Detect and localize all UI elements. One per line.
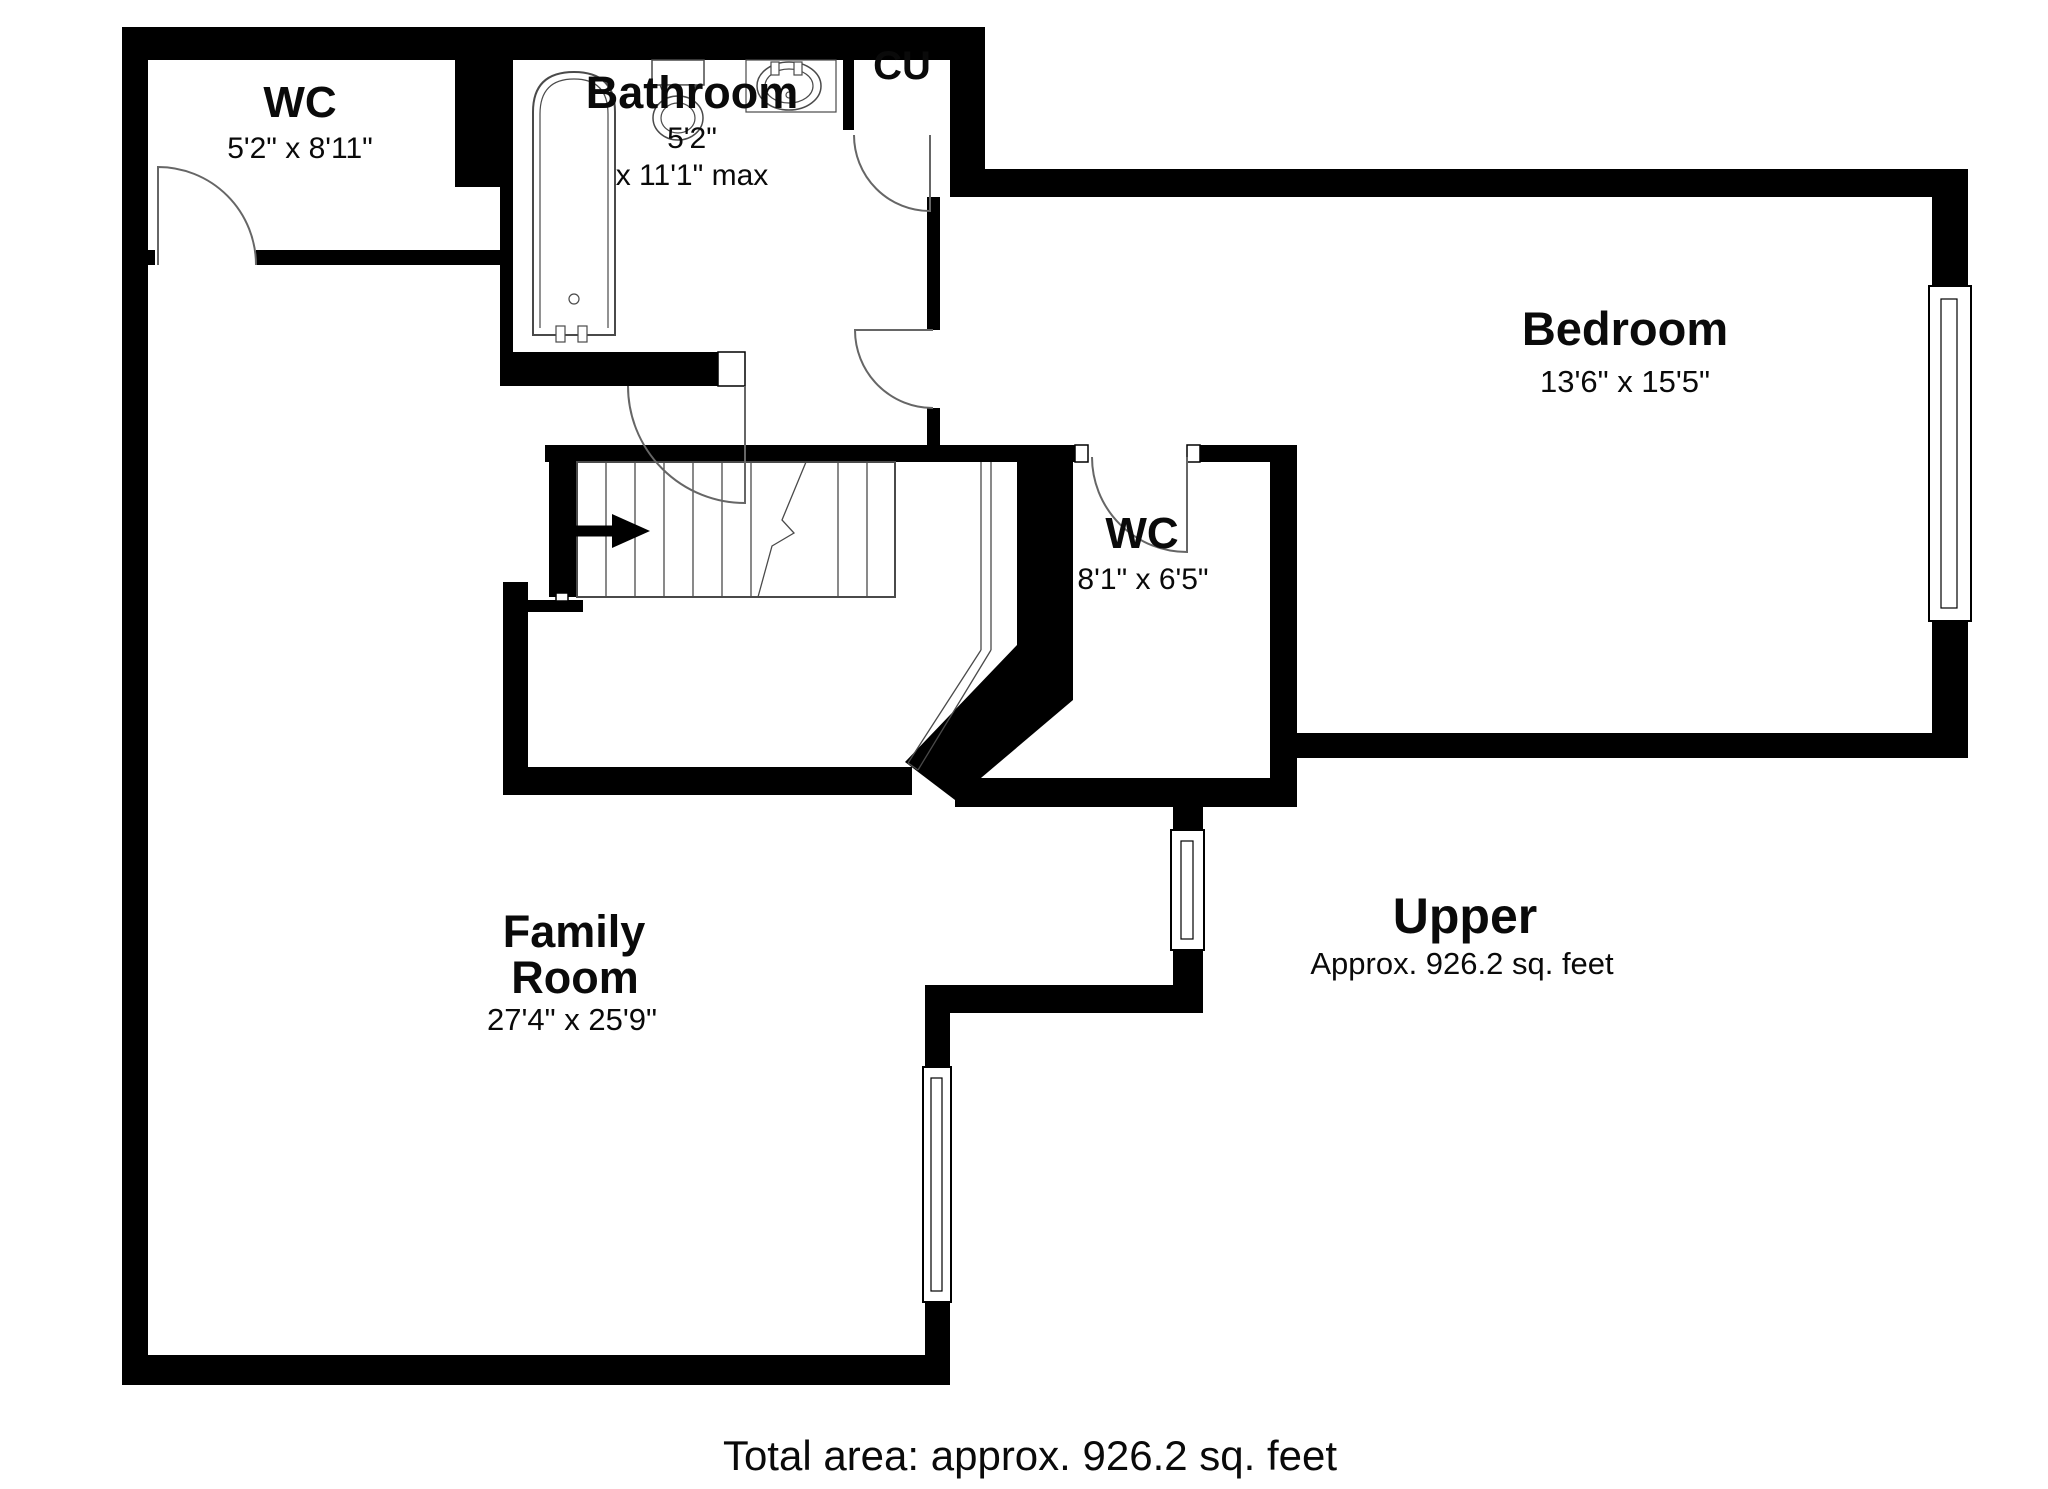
room-dims-wc-mid: 8'1" x 6'5"	[1077, 563, 1208, 596]
room-label-wc-top: WC	[263, 78, 336, 127]
wall-bedroom-top	[950, 169, 1968, 197]
wall-hall-band-east	[1200, 445, 1270, 462]
jamb-bathroom-door	[718, 352, 745, 386]
wall-family-bottom	[122, 1355, 950, 1385]
wall-wctop-bottom	[256, 250, 500, 265]
wall-wcmid-right	[1270, 445, 1297, 807]
wall-family-right-upper	[925, 1013, 950, 1067]
floor-area: Approx. 926.2 sq. feet	[1310, 946, 1614, 981]
landing-window	[1171, 830, 1204, 950]
wall-bedroom-bottom	[1270, 733, 1968, 758]
wall-right-upper	[1932, 197, 1968, 287]
total-area-footer: Total area: approx. 926.2 sq. feet	[723, 1432, 1337, 1479]
wall-cu-left	[843, 27, 854, 130]
room-label-bedroom: Bedroom	[1522, 302, 1728, 355]
wall-wctop-bottom-stub	[122, 250, 155, 265]
room-dims-bedroom: 13'6" x 15'5"	[1540, 364, 1710, 399]
room-label-family-1: Family	[503, 906, 646, 957]
wall-understairs-vertical	[503, 582, 528, 795]
wall-wcmid-bottom	[955, 778, 1297, 807]
family-room-window	[923, 1067, 951, 1302]
wall-understairs-horizontal	[503, 767, 912, 795]
wall-left-outer	[122, 27, 148, 1385]
room-dims-family: 27'4" x 25'9"	[487, 1002, 657, 1037]
jamb-stairs-bottom	[556, 593, 568, 601]
wall-bedroom-stub-lower	[927, 408, 940, 445]
wall-understairs-step	[528, 600, 583, 612]
wall-bath-bottom	[500, 352, 718, 386]
room-dims-bathroom-1: 5'2"	[667, 122, 717, 155]
room-dims-wc-top: 5'2" x 8'11"	[227, 132, 373, 165]
room-dims-bathroom-2: x 11'1" max	[616, 159, 769, 192]
wall-stairs-left	[549, 462, 577, 597]
room-label-cu: CU	[873, 44, 931, 88]
wall-window-column-upper	[1173, 807, 1203, 830]
floor-title: Upper	[1393, 888, 1537, 944]
wall-step-west	[925, 985, 1203, 1013]
wall-top	[122, 27, 950, 60]
bedroom-window	[1929, 286, 1971, 621]
jamb-wcmid-left	[1075, 445, 1088, 462]
jamb-wcmid-right	[1187, 445, 1200, 462]
wall-hall-band-west	[545, 445, 1075, 462]
room-label-bathroom: Bathroom	[586, 67, 799, 118]
floor-plan-upper: WC 5'2" x 8'11" Bathroom 5'2" x 11'1" ma…	[0, 0, 2048, 1489]
room-label-family-2: Room	[511, 952, 639, 1003]
room-label-wc-mid: WC	[1105, 509, 1178, 558]
wall-divider-thin	[500, 60, 513, 352]
wall-bedroom-stub-upper	[927, 197, 940, 330]
